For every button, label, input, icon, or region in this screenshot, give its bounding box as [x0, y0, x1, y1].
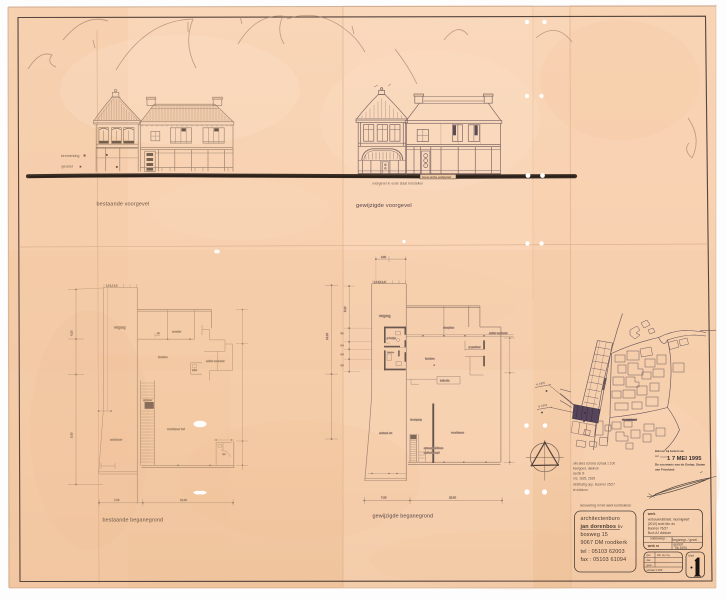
- svg-text:bouw.onthe wafputtett: bouw.onthe wafputtett: [422, 175, 451, 179]
- svg-text:vergang: vergang: [379, 314, 391, 318]
- svg-text:tel : 05103 62003: tel : 05103 62003: [581, 549, 625, 555]
- svg-text:werk: werk: [647, 512, 656, 516]
- svg-text:1.0 1.2 1.0: 1.0 1.2 1.0: [374, 281, 386, 284]
- svg-text:entreegeschikbare: entreegeschikbare: [424, 447, 444, 450]
- svg-text:kenmerking: kenmerking: [61, 154, 80, 158]
- svg-text:get: get: [647, 553, 651, 557]
- svg-text:Behoort bij besluit van: Behoort bij besluit van: [655, 449, 684, 453]
- svg-text:achter aanbouw: achter aanbouw: [206, 359, 225, 363]
- svg-text:opkamer: opkamer: [143, 399, 153, 402]
- svg-text:gewijzigde voorgevel: gewijzigde voorgevel: [356, 203, 412, 209]
- svg-text:wb, w+r kj: wb, w+r kj: [657, 553, 670, 557]
- svg-text:De secretaris van de Gedep. St: De secretaris van de Gedep. Staten: [655, 463, 705, 467]
- svg-text:slaapkan: slaapkan: [443, 326, 455, 330]
- svg-text:renovering in het werk kontrol: renovering in het werk kontroleren: [580, 504, 631, 508]
- svg-text:7.06: 7.06: [381, 496, 387, 500]
- svg-text:verbouw/uitbreid. monnigwerf: verbouw/uitbreid. monnigwerf: [648, 517, 690, 521]
- svg-text:toilet: toilet: [192, 369, 197, 372]
- svg-text:gr gastheat: gr gastheat: [469, 346, 481, 349]
- svg-text:wd: wd: [655, 454, 659, 458]
- svg-text:9.60: 9.60: [70, 432, 74, 438]
- svg-text:gr badge: gr badge: [387, 337, 397, 340]
- svg-text:fax : 05103 61094: fax : 05103 61094: [581, 557, 627, 563]
- svg-text:1 7 MEI 1995: 1 7 MEI 1995: [667, 456, 702, 462]
- svg-text:bosweg 15: bosweg 15: [581, 532, 608, 538]
- svg-text:buiks flat: buiks flat: [440, 380, 450, 383]
- svg-text:te dokkum: te dokkum: [573, 488, 588, 492]
- svg-text:(2010) woel dbr. do: (2010) woel dbr. do: [648, 522, 676, 526]
- svg-text:dusche: dusche: [387, 352, 395, 354]
- svg-text:aanbouw: aanbouw: [110, 438, 123, 442]
- svg-text:vergang: vergang: [114, 326, 126, 330]
- svg-text:straffustig opp. Buorren 25/27: straffustig opp. Buorren 25/27: [573, 483, 615, 487]
- svg-text:gevelst: gevelst: [62, 165, 73, 169]
- svg-text:Bu.rt.AJ dokkum: Bu.rt.AJ dokkum: [648, 531, 672, 535]
- svg-text:werk nr: werk nr: [647, 544, 660, 548]
- svg-text:moeker: moeker: [172, 330, 181, 334]
- svg-text:egalisatie tegel: egalisatie tegel: [424, 452, 440, 455]
- svg-text:voorgevel in oude staat herste: voorgevel in oude staat herstellen: [372, 182, 423, 186]
- svg-text:achterk ert: achterk ert: [379, 431, 392, 435]
- svg-text:gewijzigde beganegrond: gewijzigde beganegrond: [373, 514, 434, 520]
- svg-text:14.10: 14.10: [325, 333, 329, 340]
- svg-text:keelgoed, dakinok: keelgoed, dakinok: [573, 467, 599, 471]
- svg-text:9067 DM roodkerk: 9067 DM roodkerk: [581, 540, 628, 546]
- svg-text:1.0 1.2 1.0: 1.0 1.2 1.0: [106, 284, 118, 287]
- svg-text:5.10: 5.10: [343, 306, 347, 312]
- svg-text:architectenburo: architectenburo: [581, 516, 620, 522]
- svg-text:4.20: 4.20: [70, 330, 74, 336]
- svg-text:VOORSTRAAT: VOORSTRAAT: [622, 419, 638, 422]
- svg-text:voorkamer: voorkamer: [451, 430, 464, 434]
- svg-text:schaal 1:100: schaal 1:100: [647, 568, 663, 572]
- svg-text:achter aanbouw: achter aanbouw: [489, 331, 508, 335]
- svg-text:bestaande voorgevel: bestaande voorgevel: [97, 202, 150, 208]
- svg-text:3.60: 3.60: [381, 255, 387, 259]
- svg-text:van Friesland: van Friesland: [655, 467, 675, 471]
- svg-text:7.06: 7.06: [114, 498, 120, 502]
- svg-text:sectie B: sectie B: [573, 472, 584, 476]
- svg-text:Buorren 76/27: Buorren 76/27: [648, 527, 668, 531]
- svg-text:doorgang: doorgang: [410, 418, 422, 422]
- svg-text:voorkamer bsf: voorkamer bsf: [167, 427, 185, 431]
- svg-text:dat: dat: [647, 558, 651, 562]
- svg-text:onderwerp :: onderwerp :: [650, 537, 667, 541]
- svg-text:13.80: 13.80: [180, 498, 187, 502]
- svg-text:rm: rm: [157, 332, 160, 335]
- svg-text:bestaande beganegrond: bestaande beganegrond: [103, 518, 164, 524]
- svg-text:keuken: keuken: [425, 357, 435, 361]
- svg-text:15.80: 15.80: [449, 496, 456, 500]
- svg-text:blad: blad: [689, 554, 695, 558]
- svg-text:96-1093: 96-1093: [675, 546, 687, 550]
- svg-text:nrs. 1825, 2639: nrs. 1825, 2639: [573, 476, 595, 480]
- svg-text:beganegr. / gevel: beganegr. / gevel: [673, 538, 698, 542]
- svg-text:uitv.alles schans schaal 1:100: uitv.alles schans schaal 1:100: [573, 462, 615, 466]
- svg-text:keuken: keuken: [158, 355, 168, 359]
